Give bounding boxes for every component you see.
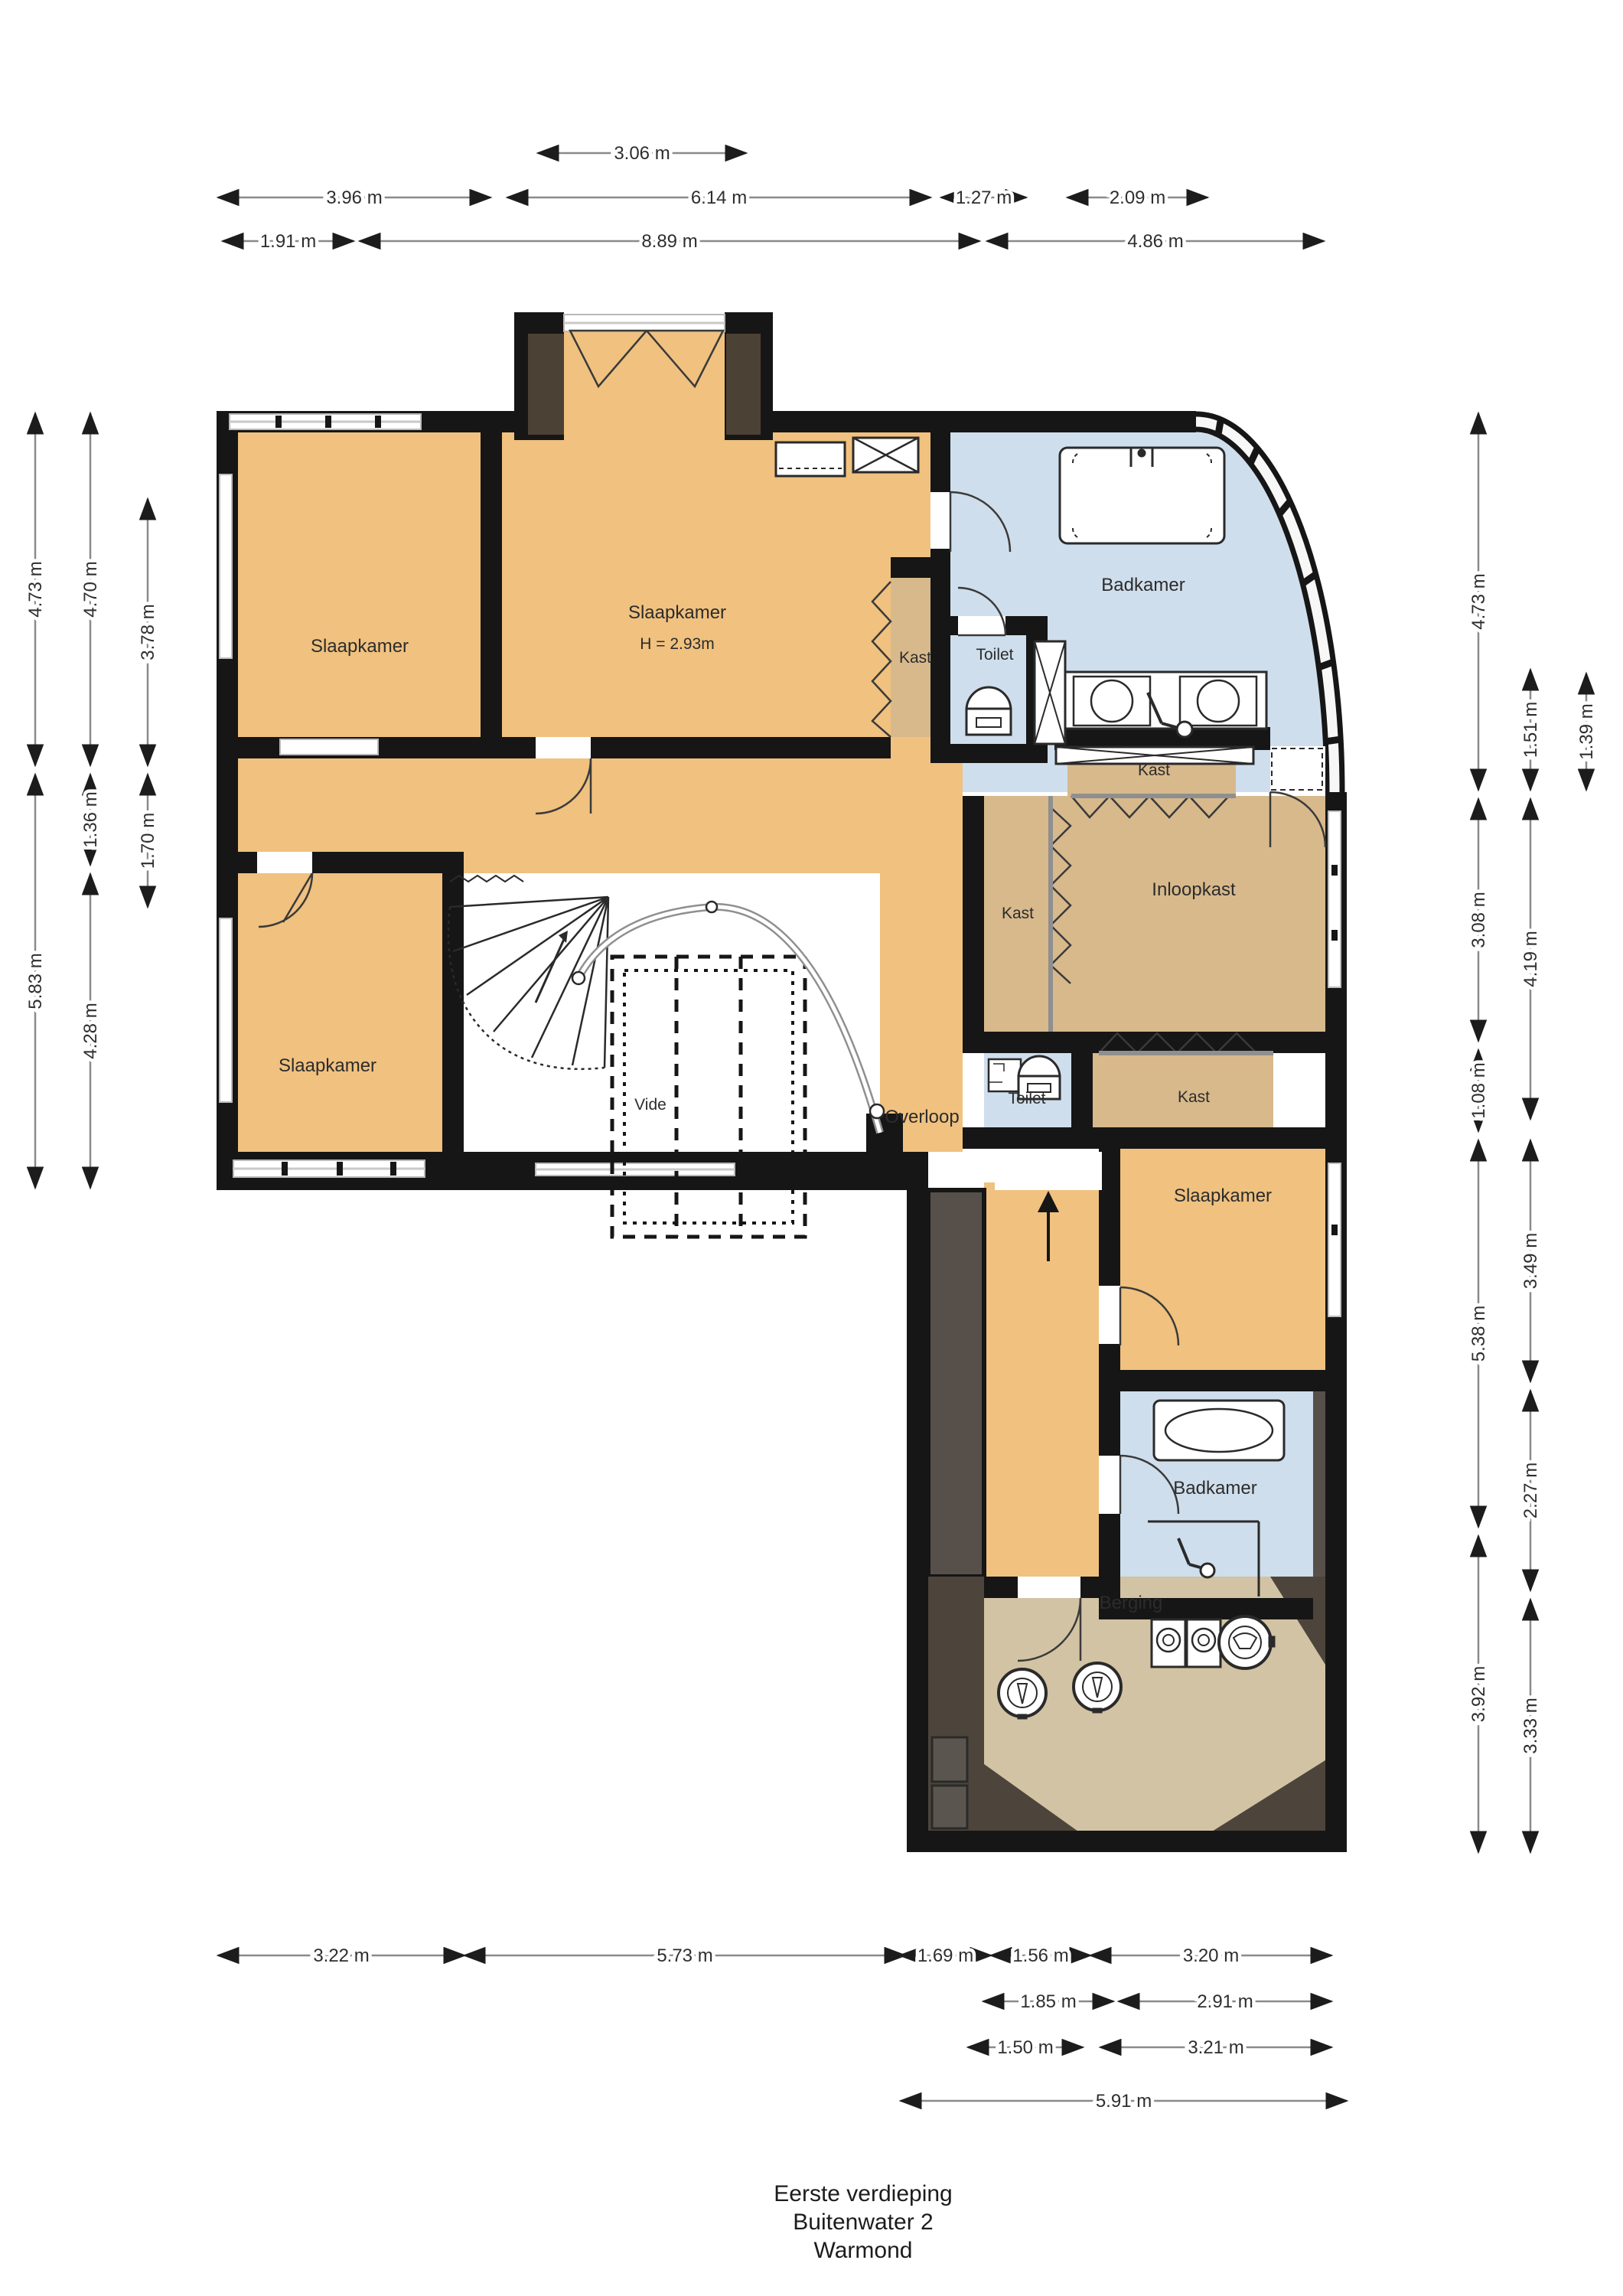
dimension-label: 5.73 m [657, 1945, 712, 1966]
dimension: 1.08 m [1468, 1050, 1489, 1131]
dimension: 8.89 m [360, 231, 979, 252]
dimension-label: 2.27 m [1520, 1463, 1541, 1518]
dimension: 3.92 m [1468, 1536, 1489, 1852]
title-address: Buitenwater 2 [0, 2208, 1623, 2236]
dimension-label: 4.86 m [1127, 231, 1183, 252]
room-label: Slaapkamer [279, 1055, 376, 1076]
floor-plan-svg: 3.06 m3.96 m6.14 m1.27 m2.09 m1.91 m8.89… [0, 0, 1623, 2296]
double-sink-icon [1064, 672, 1266, 729]
dimension-label: 2.91 m [1197, 1991, 1253, 2012]
right-window-2 [1328, 1163, 1341, 1316]
dimension-label: 3.78 m [138, 604, 158, 660]
dimension: 1.56 m [991, 1945, 1090, 1966]
dimension-label: 3.06 m [614, 143, 670, 164]
room-inloopkast-floor [984, 796, 1325, 1032]
dimension-label: 5.83 m [25, 953, 46, 1009]
dimension: 4.73 m [25, 413, 46, 765]
dimension: 5.38 m [1468, 1140, 1489, 1527]
wall-top-right [773, 411, 1196, 432]
wall-sk1-sk2 [481, 432, 502, 737]
dimension: 3.21 m [1100, 2037, 1331, 2058]
dimension: 4.28 m [80, 874, 101, 1188]
dimension-label: 1.85 m [1020, 1991, 1076, 2012]
room-label: Slaapkamer [1174, 1186, 1272, 1206]
dimension: 2.09 m [1067, 188, 1207, 208]
dimension: 6.14 m [507, 188, 930, 208]
room-label: Badkamer [1173, 1478, 1256, 1499]
room-overloop-floor [238, 758, 963, 852]
dimension: 5.91 m [901, 2091, 1347, 2112]
top-cupboard [776, 442, 845, 476]
wall-sk4-left [1099, 1149, 1120, 1391]
title-city: Warmond [0, 2236, 1623, 2265]
dimension: 3.20 m [1090, 1945, 1331, 1966]
dimension-label: 1.69 m [917, 1945, 973, 1966]
dimension-label: 8.89 m [641, 231, 697, 252]
wall-badkamer2-top [1120, 1370, 1325, 1391]
niche-dashed [1272, 748, 1322, 790]
dimension-label: 4.19 m [1520, 931, 1541, 987]
dimension: 1.69 m [900, 1945, 991, 1966]
dimension-label: 3.20 m [1183, 1945, 1239, 1966]
dark-band-left [928, 1190, 984, 1577]
room-slaapkamer-1-floor [217, 411, 502, 758]
title-floor: Eerste verdieping [0, 2180, 1623, 2208]
dimension: 4.73 m [1468, 413, 1489, 790]
left-window-2 [220, 918, 232, 1102]
dimension-label: 1.36 m [80, 791, 101, 847]
wall-wing-left [907, 1152, 928, 1852]
room-label: Berging [1100, 1593, 1163, 1613]
room-label: Overloop [885, 1107, 959, 1127]
room-label: Slaapkamer [311, 636, 409, 657]
room-overloop-floor-2 [464, 852, 963, 875]
left-window-1 [220, 475, 232, 658]
room-label: H = 2.93m [640, 635, 714, 653]
dimension: 3.06 m [538, 143, 746, 164]
dimension-label: 3.92 m [1468, 1666, 1489, 1722]
wall-inloopkast-bottom [963, 1032, 1325, 1053]
dimension-label: 5.38 m [1468, 1306, 1489, 1362]
dimension: 1.85 m [983, 1991, 1113, 2012]
bay-pillar-left-inner [528, 334, 564, 435]
room-slaapkamer-3-floor [238, 873, 442, 1152]
dimension-label: 1.70 m [138, 813, 158, 869]
room-label: Slaapkamer [628, 602, 726, 623]
dimension: 1.51 m [1520, 670, 1541, 790]
dimension-label: 5.91 m [1096, 2091, 1152, 2112]
berging-cabinet-1 [932, 1737, 967, 1782]
dimension-label: 1.91 m [260, 231, 316, 252]
dimension-label: 1.08 m [1468, 1062, 1489, 1118]
dimension: 4.70 m [80, 413, 101, 765]
dimension: 5.83 m [25, 775, 46, 1188]
dimension-label: 3.22 m [313, 1945, 369, 1966]
room-slaapkamer-4-floor [1120, 1149, 1325, 1370]
dimension: 2.91 m [1119, 1991, 1331, 2012]
dimension: 1.36 m [80, 775, 101, 865]
dimension-label: 4.73 m [1468, 573, 1489, 629]
dimension-label: 4.28 m [80, 1003, 101, 1058]
room-label: Vide [634, 1096, 666, 1114]
dimension-label: 3.08 m [1468, 892, 1489, 947]
dimension-label: 2.09 m [1110, 188, 1165, 208]
dimension: 1.50 m [968, 2037, 1083, 2058]
dimension: 2.27 m [1520, 1391, 1541, 1590]
dimension-label: 3.96 m [326, 188, 382, 208]
wall-sk3-right [442, 852, 464, 1152]
dimension-label: 4.70 m [80, 561, 101, 617]
dimension-label: 1.56 m [1012, 1945, 1068, 1966]
right-window-1 [1328, 811, 1341, 987]
dimension: 3.33 m [1520, 1600, 1541, 1852]
dimension: 4.86 m [987, 231, 1324, 252]
room-label: Badkamer [1101, 575, 1185, 595]
dimension: 1.27 m [941, 188, 1026, 208]
room-label: Kast [1138, 762, 1170, 779]
wall-kast1-top [891, 557, 950, 578]
dimension: 3.08 m [1468, 799, 1489, 1041]
dark-strip-right [1313, 1391, 1325, 1598]
sk1-interior-window [280, 739, 378, 755]
wall-badkamer-left-b [930, 549, 950, 744]
room-label: Kast [1002, 905, 1034, 922]
toilet-icon [966, 687, 1011, 735]
room-label: Toilet [976, 646, 1013, 664]
wall-toilet1-bottom [930, 744, 1048, 763]
dimension-label: 3.49 m [1520, 1233, 1541, 1289]
dimension: 5.73 m [464, 1945, 905, 1966]
dimension-label: 4.73 m [25, 561, 46, 617]
dimension: 3.22 m [218, 1945, 464, 1966]
room-label: Kast [899, 649, 931, 667]
dimension: 1.39 m [1576, 673, 1597, 790]
dimension: 3.96 m [218, 188, 490, 208]
dimension-label: 3.33 m [1520, 1698, 1541, 1753]
wall-badkamer-left-a [930, 432, 950, 492]
dimension-label: 3.21 m [1188, 2037, 1243, 2058]
plan-title: Eerste verdieping Buitenwater 2 Warmond [0, 2180, 1623, 2265]
room-label: Inloopkast [1152, 879, 1236, 900]
dimension: 1.70 m [138, 775, 158, 907]
bathtub-icon [1060, 448, 1224, 543]
bay-pillar-right-inner [726, 334, 761, 435]
wall-inloopkast-left [963, 796, 984, 1053]
washing-machine-icons [1152, 1619, 1221, 1667]
dimension-label: 1.27 m [956, 188, 1012, 208]
wall-toilet2-right [1071, 1053, 1093, 1127]
wall-wing-bottom [907, 1831, 1347, 1852]
dimension: 3.78 m [138, 499, 158, 765]
bathtub-2-icon [1154, 1401, 1284, 1460]
room-label: Kast [1178, 1088, 1210, 1106]
berging-cabinet-2 [932, 1786, 967, 1828]
wall-kast4-bottom [963, 1127, 1325, 1149]
shaft-x-box [853, 438, 918, 472]
dimension-label: 6.14 m [691, 188, 747, 208]
dimension: 1.91 m [223, 231, 354, 252]
dimension-label: 1.39 m [1576, 703, 1597, 759]
dimension-label: 1.51 m [1520, 702, 1541, 758]
room-label: Toilet [1008, 1090, 1045, 1107]
dimension: 4.19 m [1520, 799, 1541, 1119]
dimension-label: 1.50 m [997, 2037, 1053, 2058]
dimension: 3.49 m [1520, 1140, 1541, 1381]
floor-plan-canvas: 3.06 m3.96 m6.14 m1.27 m2.09 m1.91 m8.89… [0, 0, 1623, 2296]
